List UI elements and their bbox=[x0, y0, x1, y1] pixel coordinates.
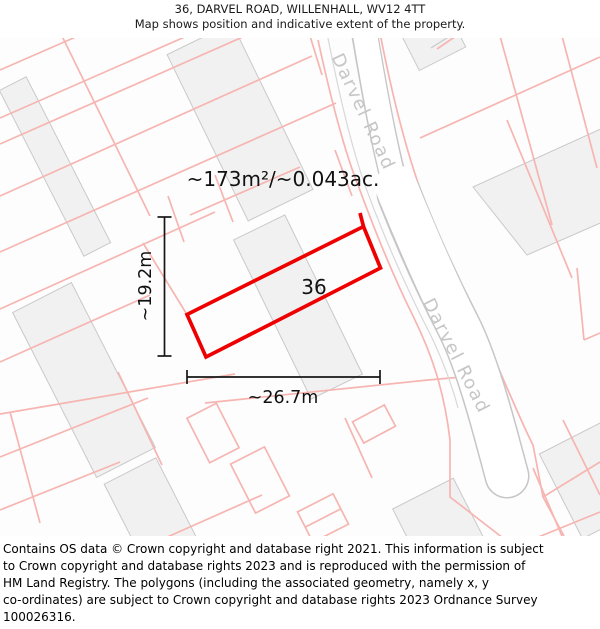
plot-number-label: 36 bbox=[301, 275, 326, 299]
footer-line: co-ordinates) are subject to Crown copyr… bbox=[3, 592, 598, 609]
width-dimension-label: ~26.7m bbox=[248, 388, 319, 408]
footer-line: 100026316. bbox=[3, 609, 598, 626]
footer-line: Contains OS data © Crown copyright and d… bbox=[3, 541, 598, 558]
footer-line: HM Land Registry. The polygons (includin… bbox=[3, 575, 598, 592]
map-svg: Darvel Road Darvel Road ~173m²/~0.043ac.… bbox=[0, 0, 600, 625]
footer-line: to Crown copyright and database rights 2… bbox=[3, 558, 598, 575]
height-dimension-label: ~19.2m bbox=[136, 251, 156, 322]
copyright-footer: Contains OS data © Crown copyright and d… bbox=[0, 536, 600, 625]
page-header: 36, DARVEL ROAD, WILLENHALL, WV12 4TT Ma… bbox=[0, 0, 600, 38]
area-label: ~173m²/~0.043ac. bbox=[187, 167, 380, 191]
property-map: Darvel Road Darvel Road ~173m²/~0.043ac.… bbox=[0, 0, 600, 629]
page-subtitle: Map shows position and indicative extent… bbox=[0, 17, 600, 32]
page-title: 36, DARVEL ROAD, WILLENHALL, WV12 4TT bbox=[0, 2, 600, 17]
